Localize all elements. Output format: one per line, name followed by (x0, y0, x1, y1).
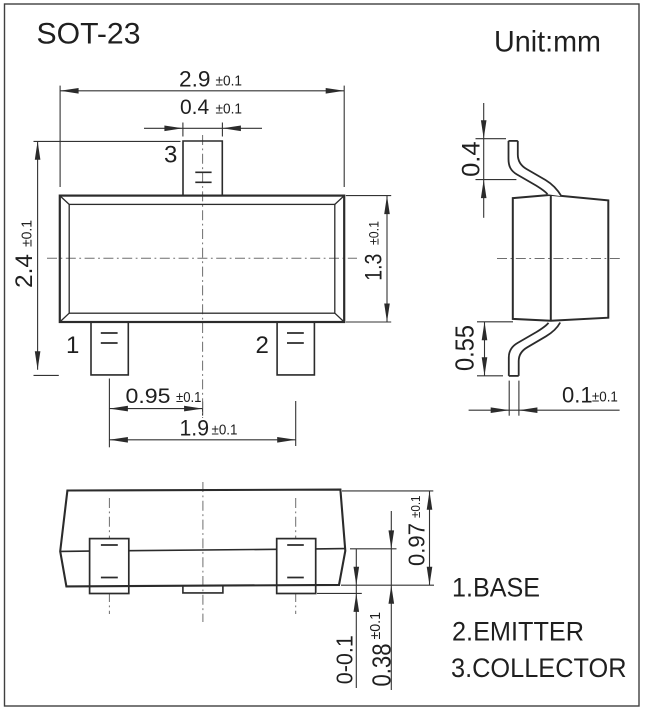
svg-text:3.COLLECTOR: 3.COLLECTOR (451, 653, 627, 683)
svg-text:2.4: 2.4 (11, 254, 38, 288)
svg-text:±0.1: ±0.1 (176, 390, 202, 406)
svg-text:2.EMITTER: 2.EMITTER (452, 617, 584, 647)
svg-text:±0.1: ±0.1 (592, 390, 618, 406)
svg-text:1.3: 1.3 (361, 254, 388, 281)
svg-text:1: 1 (66, 332, 79, 359)
svg-text:±0.1: ±0.1 (368, 612, 384, 640)
svg-text:0.38: 0.38 (367, 644, 397, 687)
svg-text:3: 3 (164, 142, 177, 169)
svg-text:±0.1: ±0.1 (216, 74, 243, 90)
svg-text:0.1: 0.1 (562, 383, 593, 408)
svg-text:0.55: 0.55 (452, 325, 480, 371)
svg-text:1.9: 1.9 (180, 415, 210, 440)
svg-text:2: 2 (256, 332, 269, 359)
svg-text:0-0.1: 0-0.1 (332, 635, 358, 684)
svg-text:±0.1: ±0.1 (408, 496, 423, 519)
svg-text:±0.1: ±0.1 (20, 220, 36, 247)
svg-text:0.97: 0.97 (404, 523, 430, 566)
svg-text:±0.1: ±0.1 (212, 422, 238, 438)
svg-text:Unit:mm: Unit:mm (494, 26, 601, 59)
svg-text:SOT-23: SOT-23 (37, 17, 141, 50)
svg-text:±0.1: ±0.1 (216, 102, 243, 118)
svg-text:0.4: 0.4 (180, 96, 210, 119)
svg-text:±0.1: ±0.1 (366, 221, 382, 245)
svg-text:2.9: 2.9 (179, 67, 211, 92)
svg-text:0.95: 0.95 (126, 385, 171, 408)
svg-text:1.BASE: 1.BASE (452, 573, 540, 603)
svg-text:0.4: 0.4 (458, 141, 486, 177)
